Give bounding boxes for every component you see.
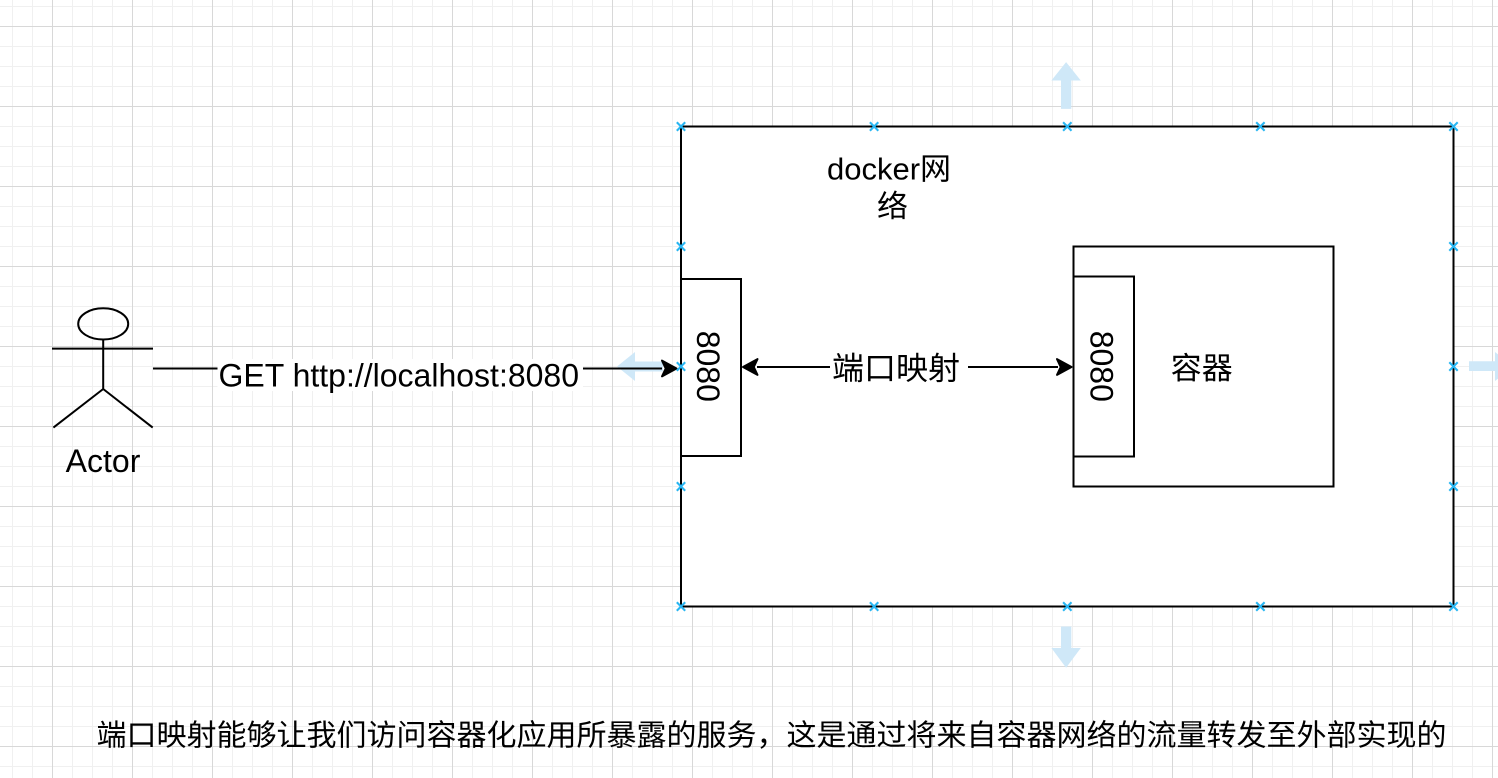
svg-text:Actor: Actor (66, 443, 141, 479)
svg-text:docker: docker (827, 152, 920, 187)
svg-text:8080: 8080 (690, 331, 726, 402)
svg-text:8080: 8080 (1084, 331, 1120, 402)
svg-text:GET http://localhost:8080: GET http://localhost:8080 (219, 358, 580, 394)
